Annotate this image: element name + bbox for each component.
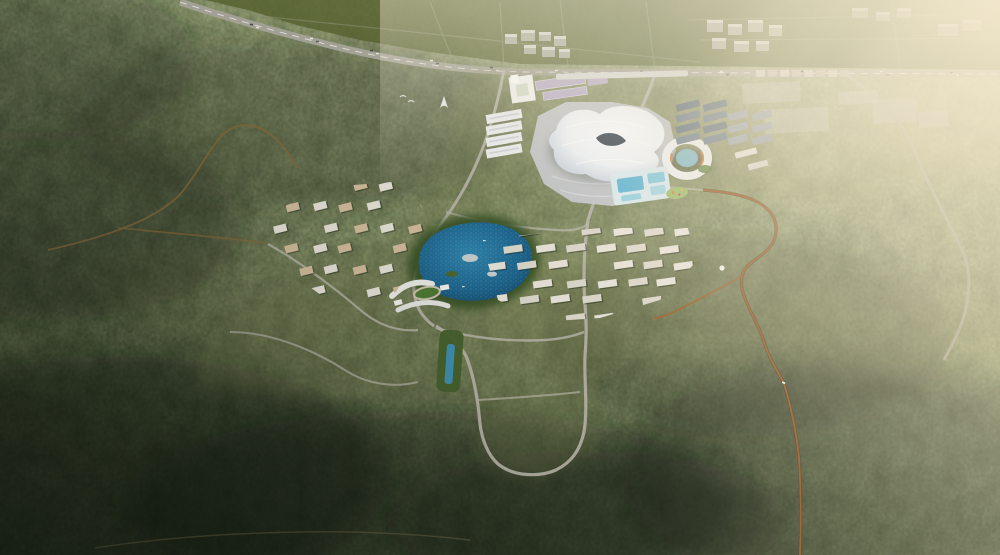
vignette [0, 0, 1000, 555]
aerial-visualization-canvas: Aerial masterplan rendering of a forest … [0, 0, 1000, 555]
aerial-render-stage: Aerial masterplan rendering of a forest … [0, 0, 1000, 555]
